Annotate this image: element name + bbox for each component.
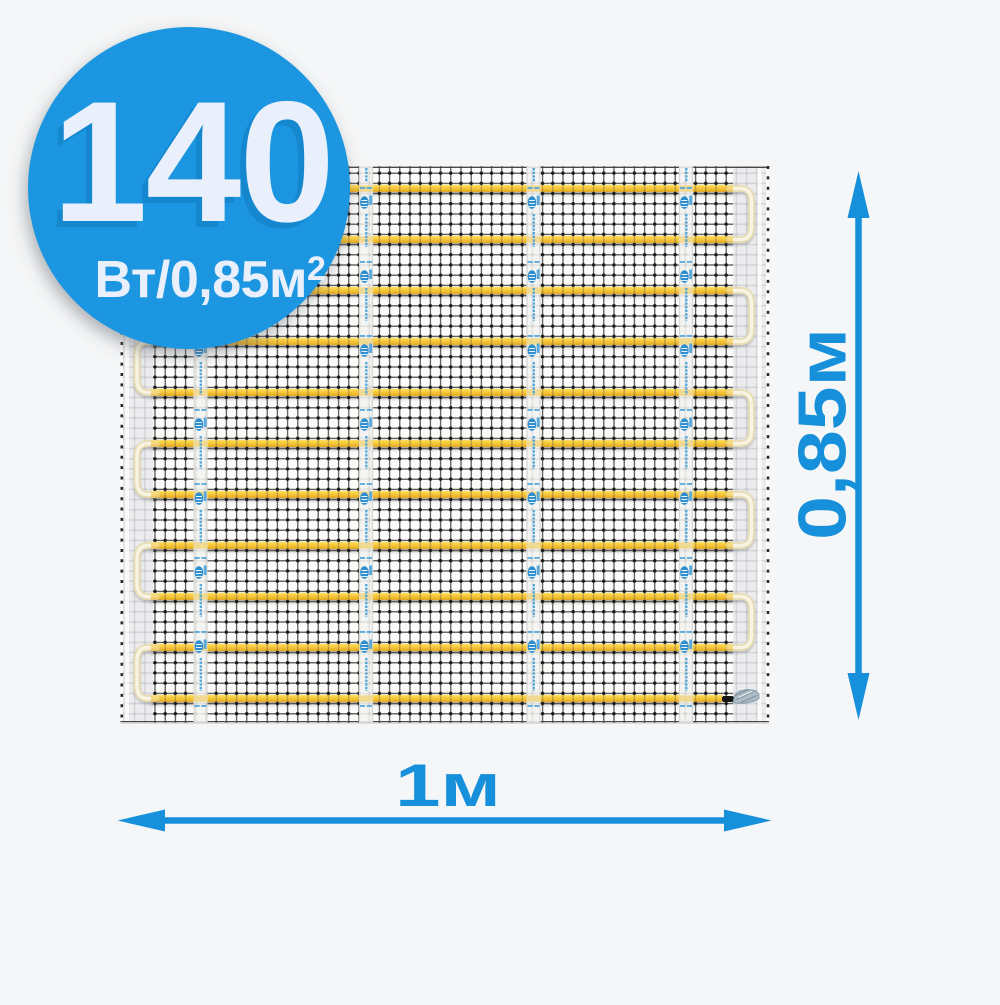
svg-text:140: 140 [52,66,333,258]
svg-text:Вт/0,85м2: Вт/0,85м2 [95,250,326,309]
svg-text:0,85м: 0,85м [784,328,861,540]
svg-text:1м: 1м [395,752,501,819]
